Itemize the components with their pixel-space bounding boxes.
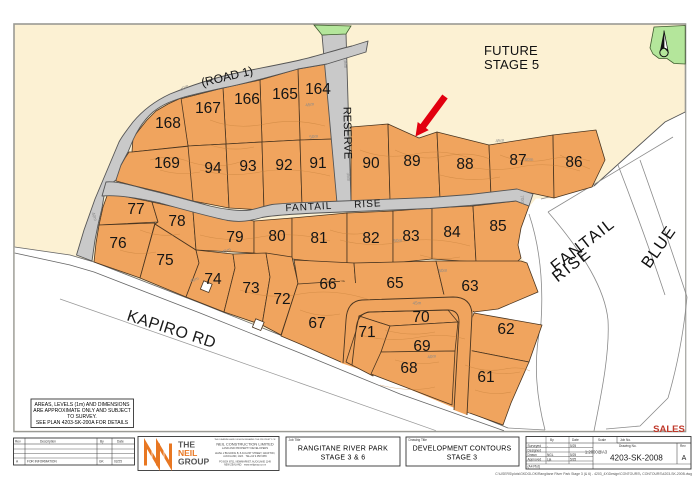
svg-text:68: 68 bbox=[400, 360, 417, 377]
svg-text:Date: Date bbox=[572, 438, 579, 442]
svg-text:A: A bbox=[682, 455, 687, 462]
svg-text:78: 78 bbox=[168, 213, 185, 230]
svg-text:C:\USERS\plots\GKDGLOK\Rangita: C:\USERS\plots\GKDGLOK\Rangitane River P… bbox=[495, 472, 692, 476]
svg-text:Approved: Approved bbox=[528, 457, 542, 461]
svg-text:86: 86 bbox=[565, 154, 582, 171]
svg-text:FOR INFORMATION: FOR INFORMATION bbox=[27, 460, 57, 464]
svg-text:61: 61 bbox=[477, 369, 494, 386]
svg-text:85: 85 bbox=[489, 218, 506, 235]
svg-text:50m: 50m bbox=[393, 238, 402, 244]
svg-text:SEE PLAN 4203-SK-200A FOR DETA: SEE PLAN 4203-SK-200A FOR DETAILS bbox=[36, 420, 129, 426]
svg-text:5/25: 5/25 bbox=[570, 453, 576, 457]
svg-text:75: 75 bbox=[156, 252, 173, 269]
svg-text:Rev: Rev bbox=[15, 440, 21, 444]
svg-text:45m: 45m bbox=[412, 300, 421, 305]
svg-text:DEVELOPMENT CONTOURS: DEVELOPMENT CONTOURS bbox=[413, 446, 512, 453]
svg-text:89: 89 bbox=[403, 153, 420, 170]
svg-text:92: 92 bbox=[275, 157, 292, 174]
svg-text:-: - bbox=[547, 444, 548, 448]
svg-text:(A4 Plot): (A4 Plot) bbox=[528, 465, 540, 469]
svg-text:FUTURE: FUTURE bbox=[484, 43, 538, 58]
svg-text:66: 66 bbox=[319, 276, 336, 293]
svg-text:5/25: 5/25 bbox=[570, 457, 576, 461]
svg-text:168: 168 bbox=[155, 115, 181, 132]
svg-text:50m: 50m bbox=[438, 268, 447, 274]
svg-text:02/25: 02/25 bbox=[114, 460, 122, 464]
svg-text:5/25: 5/25 bbox=[570, 444, 576, 448]
svg-text:1:2000@A3: 1:2000@A3 bbox=[585, 450, 608, 455]
svg-text:94: 94 bbox=[204, 160, 222, 177]
svg-text:63: 63 bbox=[461, 278, 478, 295]
svg-text:65: 65 bbox=[386, 275, 403, 292]
svg-text:Job Title: Job Title bbox=[289, 438, 301, 442]
svg-text:166: 166 bbox=[234, 91, 260, 108]
svg-text:82: 82 bbox=[362, 230, 379, 247]
svg-text:87: 87 bbox=[509, 152, 526, 169]
svg-text:STAGE 3 & 6: STAGE 3 & 6 bbox=[321, 455, 366, 462]
svg-text:69: 69 bbox=[413, 338, 430, 355]
svg-text:167: 167 bbox=[195, 100, 221, 117]
svg-text:Job No.: Job No. bbox=[620, 438, 631, 442]
svg-text:Drawing Title: Drawing Title bbox=[409, 438, 428, 442]
svg-text:71: 71 bbox=[358, 324, 375, 341]
svg-text:67: 67 bbox=[308, 315, 325, 332]
svg-text:Rev: Rev bbox=[680, 444, 686, 448]
svg-text:80: 80 bbox=[268, 228, 286, 245]
svg-text:LAND AND PROPERTY DEVELOPERS: LAND AND PROPERTY DEVELOPERS bbox=[222, 446, 268, 450]
svg-text:73: 73 bbox=[242, 280, 259, 297]
svg-text:62: 62 bbox=[497, 321, 514, 338]
svg-text:74: 74 bbox=[204, 271, 222, 288]
svg-text:GROUP: GROUP bbox=[178, 457, 210, 467]
svg-text:SALES: SALES bbox=[653, 424, 685, 435]
svg-text:Description: Description bbox=[40, 440, 56, 444]
svg-text:169: 169 bbox=[154, 155, 180, 172]
svg-text:NEIL CONSTRUCTION LIMITED: NEIL CONSTRUCTION LIMITED bbox=[216, 442, 274, 447]
svg-text:RISE: RISE bbox=[354, 198, 382, 210]
svg-text:RANGITANE RIVER PARK: RANGITANE RIVER PARK bbox=[298, 446, 388, 453]
svg-text:Lja: Lja bbox=[547, 457, 551, 461]
svg-text:35m: 35m bbox=[346, 172, 352, 181]
svg-text:70: 70 bbox=[412, 309, 430, 326]
svg-text:72: 72 bbox=[273, 291, 290, 308]
svg-text:83: 83 bbox=[402, 228, 419, 245]
svg-text:Designed: Designed bbox=[528, 448, 542, 452]
svg-text:Drawing No.: Drawing No. bbox=[619, 444, 637, 448]
svg-text:By: By bbox=[100, 440, 104, 444]
svg-text:90: 90 bbox=[362, 155, 380, 172]
svg-text:77: 77 bbox=[127, 201, 144, 218]
svg-text:STAGE 5: STAGE 5 bbox=[484, 57, 539, 72]
svg-text:By: By bbox=[550, 438, 554, 442]
svg-text:STAGE 3: STAGE 3 bbox=[447, 455, 477, 462]
svg-text:91: 91 bbox=[309, 155, 326, 172]
svg-text:165: 165 bbox=[272, 86, 298, 103]
svg-text:93: 93 bbox=[239, 158, 256, 175]
svg-text:NEW ZEALAND. www.neilgroup.c: NEW ZEALAND. www.neilgroup.co.nz bbox=[224, 464, 267, 467]
svg-text:36m: 36m bbox=[343, 59, 349, 68]
svg-text:Drawn: Drawn bbox=[528, 453, 537, 457]
svg-text:76: 76 bbox=[109, 235, 126, 252]
svg-text:45m: 45m bbox=[495, 138, 504, 144]
svg-text:81: 81 bbox=[310, 230, 327, 247]
svg-text:RESERVE: RESERVE bbox=[341, 107, 354, 160]
svg-text:Surveyed: Surveyed bbox=[528, 444, 542, 448]
svg-text:88: 88 bbox=[456, 156, 473, 173]
svg-text:AUCKLAND, 1023. TEL+64 9 458: AUCKLAND, 1023. TEL+64 9 458 6365 bbox=[223, 455, 267, 458]
svg-text:84: 84 bbox=[443, 224, 461, 241]
svg-text:4203-SK-2008: 4203-SK-2008 bbox=[610, 454, 663, 463]
svg-text:Scale: Scale bbox=[598, 438, 606, 442]
svg-text:79: 79 bbox=[226, 229, 243, 246]
svg-text:Date: Date bbox=[117, 440, 124, 444]
svg-text:164: 164 bbox=[305, 81, 331, 98]
svg-text:NGL: NGL bbox=[547, 453, 554, 457]
